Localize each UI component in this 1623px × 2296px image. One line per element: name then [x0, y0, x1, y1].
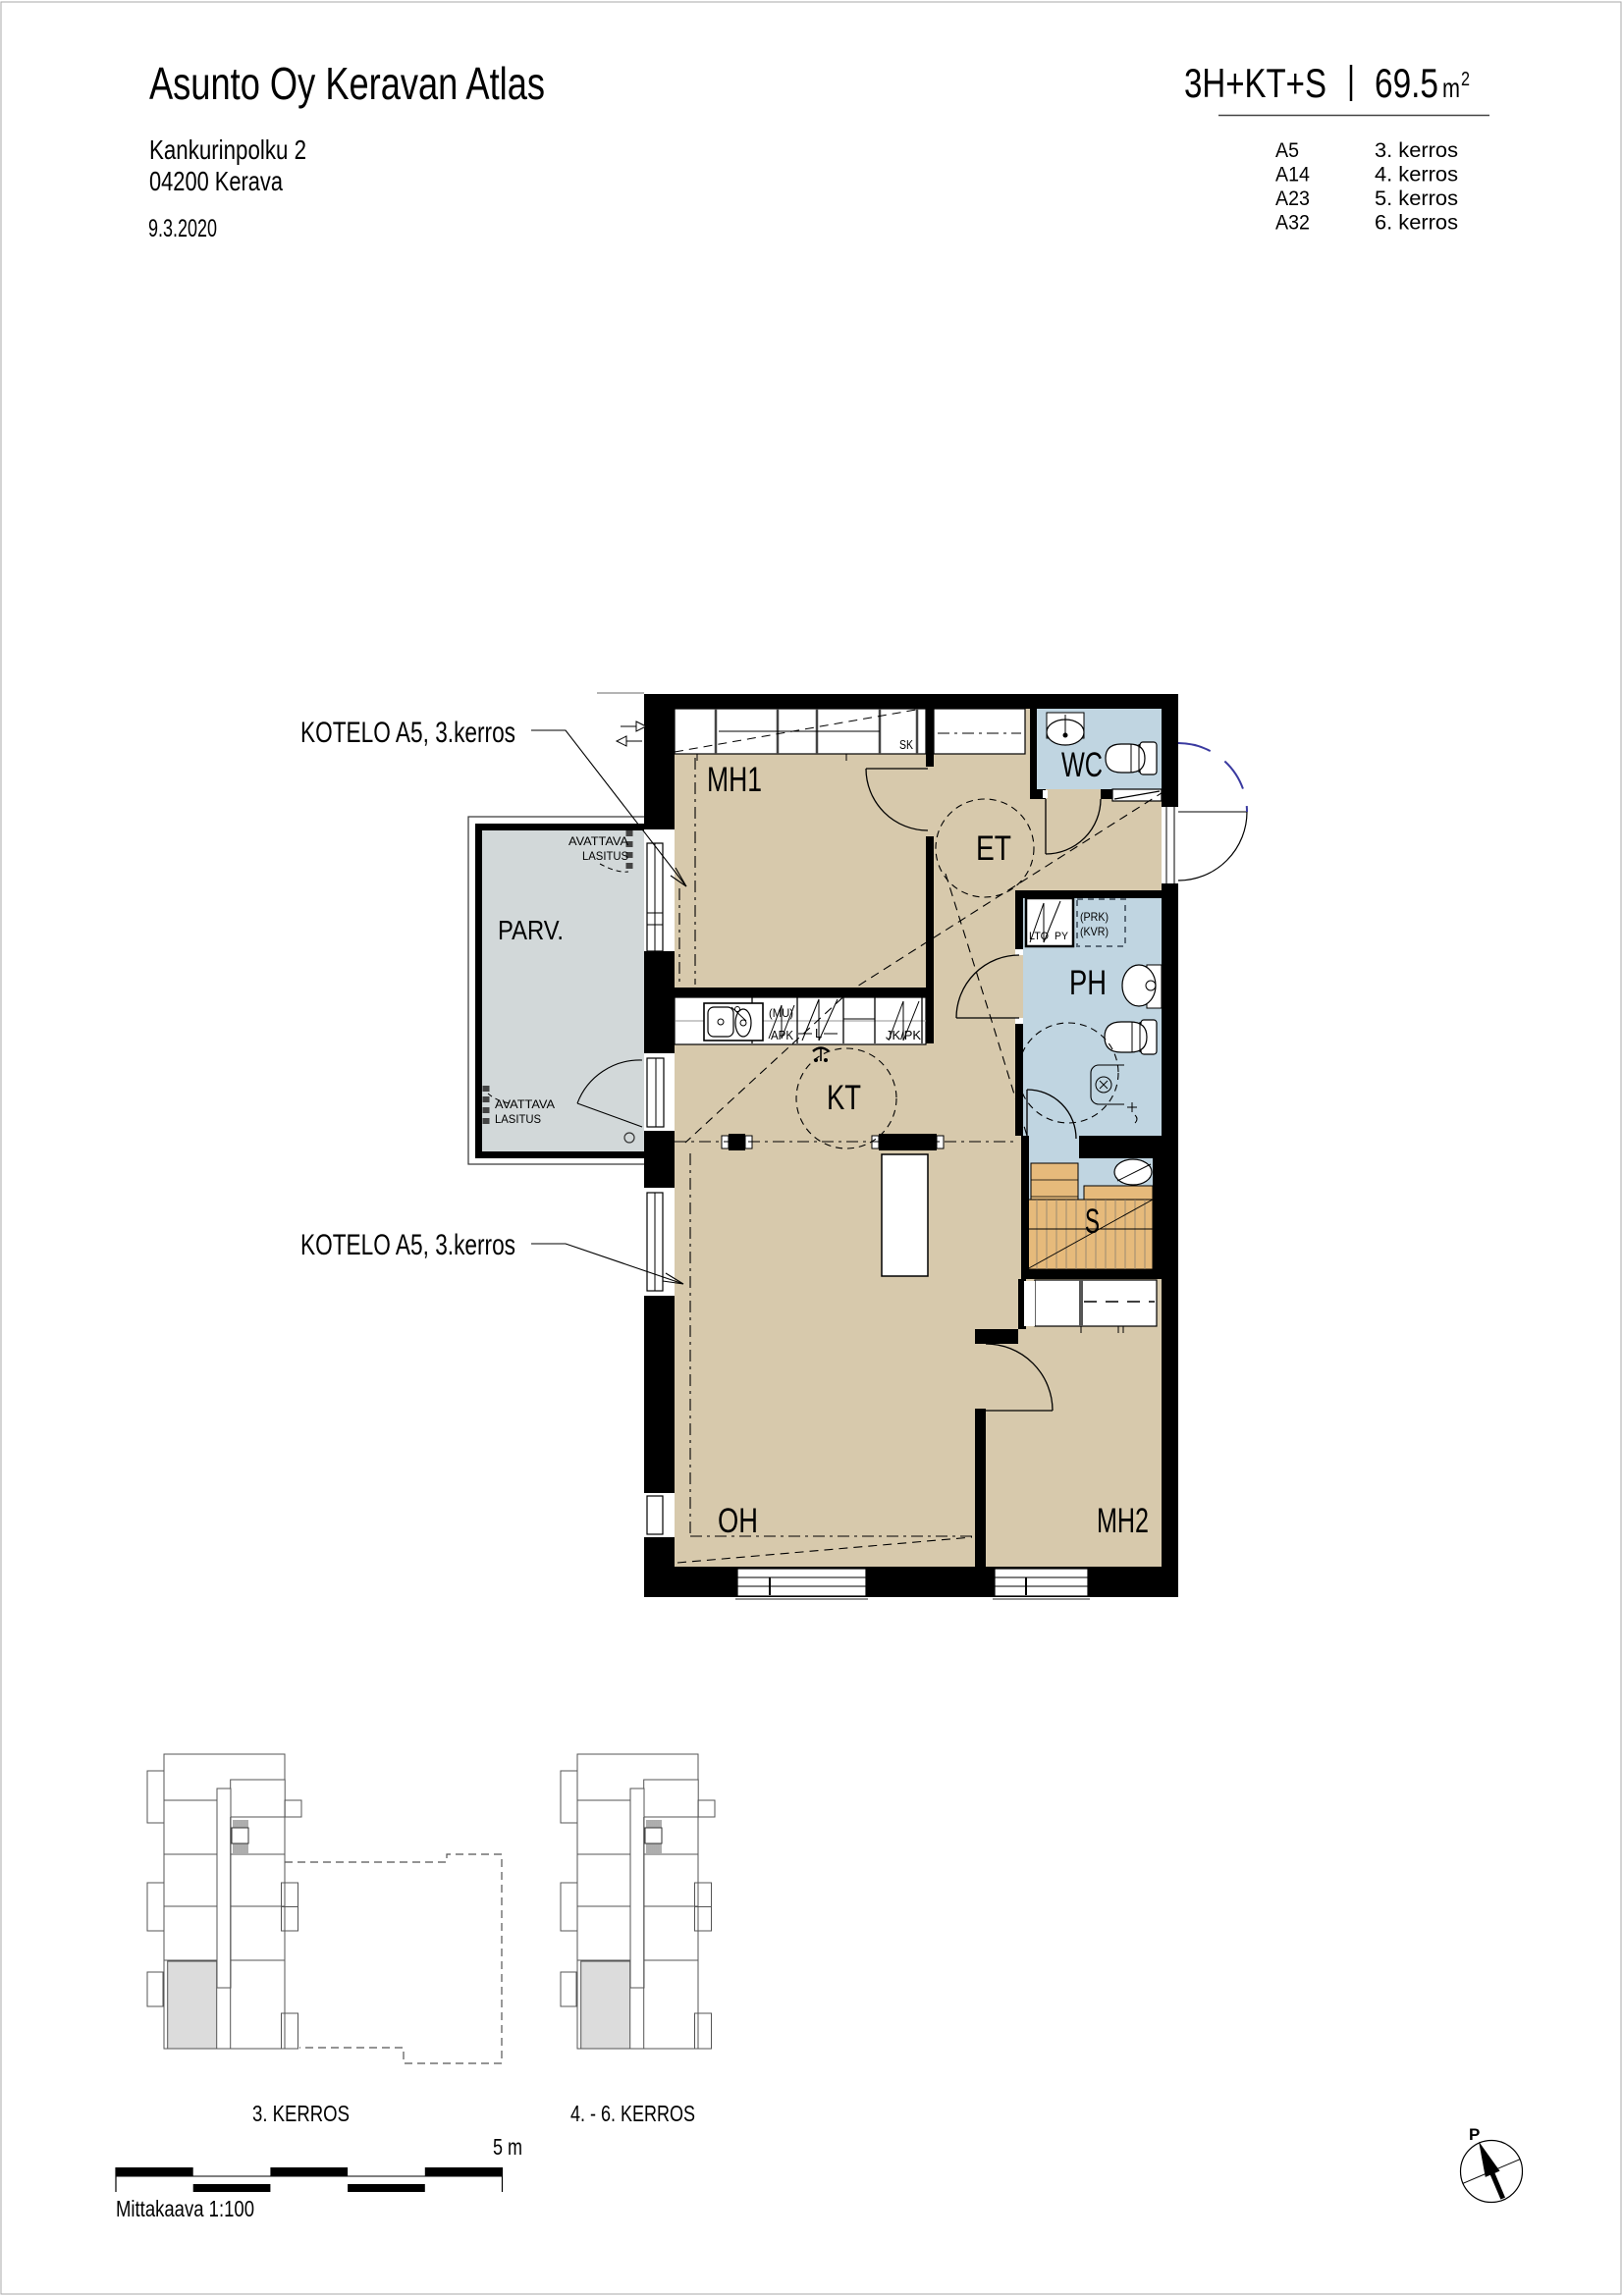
svg-text:4. kerros: 4. kerros [1375, 163, 1458, 187]
svg-text:PH: PH [1069, 964, 1107, 1002]
svg-text:L: L [815, 1026, 822, 1041]
svg-text:4. - 6. KERROS: 4. - 6. KERROS [570, 2101, 695, 2126]
svg-text:3. KERROS: 3. KERROS [252, 2101, 350, 2126]
svg-text:JK/PK: JK/PK [886, 1028, 921, 1042]
svg-text:SK: SK [899, 738, 914, 752]
svg-text:PARV.: PARV. [498, 915, 564, 945]
svg-text:A14: A14 [1275, 163, 1310, 187]
svg-text:AVATTAVA: AVATTAVA [495, 1097, 555, 1111]
svg-text:AVATTAVA: AVATTAVA [568, 834, 628, 848]
svg-text:KT: KT [827, 1079, 861, 1117]
svg-text:5 m: 5 m [493, 2134, 522, 2160]
svg-text:(PRK): (PRK) [1080, 910, 1109, 924]
svg-text:5. kerros: 5. kerros [1375, 187, 1458, 210]
svg-text:APK: APK [771, 1028, 793, 1042]
svg-text:PY: PY [1055, 931, 1069, 942]
svg-text:Asunto Oy Keravan Atlas: Asunto Oy Keravan Atlas [149, 58, 545, 109]
svg-text:WC: WC [1061, 746, 1103, 784]
svg-text:LASITUS: LASITUS [582, 849, 628, 863]
svg-text:KOTELO A5, 3.kerros: KOTELO A5, 3.kerros [300, 1229, 515, 1261]
svg-text:(MU): (MU) [769, 1006, 793, 1020]
svg-text:S: S [1085, 1202, 1100, 1241]
svg-text:2: 2 [1461, 69, 1470, 90]
svg-text:LTO: LTO [1029, 931, 1049, 942]
svg-text:MH2: MH2 [1097, 1502, 1149, 1540]
svg-text:m: m [1442, 73, 1460, 103]
svg-text:KOTELO A5, 3.kerros: KOTELO A5, 3.kerros [300, 717, 515, 749]
svg-text:3. kerros: 3. kerros [1375, 138, 1458, 162]
svg-text:P: P [1469, 2125, 1480, 2144]
svg-text:A5: A5 [1275, 138, 1299, 162]
svg-text:69.5: 69.5 [1375, 60, 1438, 106]
svg-text:9.3.2020: 9.3.2020 [148, 215, 217, 242]
svg-text:A23: A23 [1275, 187, 1310, 210]
svg-text:Kankurinpolku 2: Kankurinpolku 2 [149, 134, 306, 165]
svg-text:MH1: MH1 [707, 761, 762, 799]
svg-text:04200 Kerava: 04200 Kerava [149, 166, 283, 196]
svg-text:(KVR): (KVR) [1080, 925, 1109, 938]
svg-text:OH: OH [718, 1502, 758, 1540]
svg-text:3H+KT+S: 3H+KT+S [1184, 60, 1326, 106]
svg-text:LASITUS: LASITUS [495, 1112, 541, 1126]
svg-text:Mittakaava 1:100: Mittakaava 1:100 [116, 2196, 254, 2221]
svg-text:A32: A32 [1275, 211, 1310, 235]
svg-text:ET: ET [976, 829, 1011, 868]
svg-text:6. kerros: 6. kerros [1375, 211, 1458, 235]
